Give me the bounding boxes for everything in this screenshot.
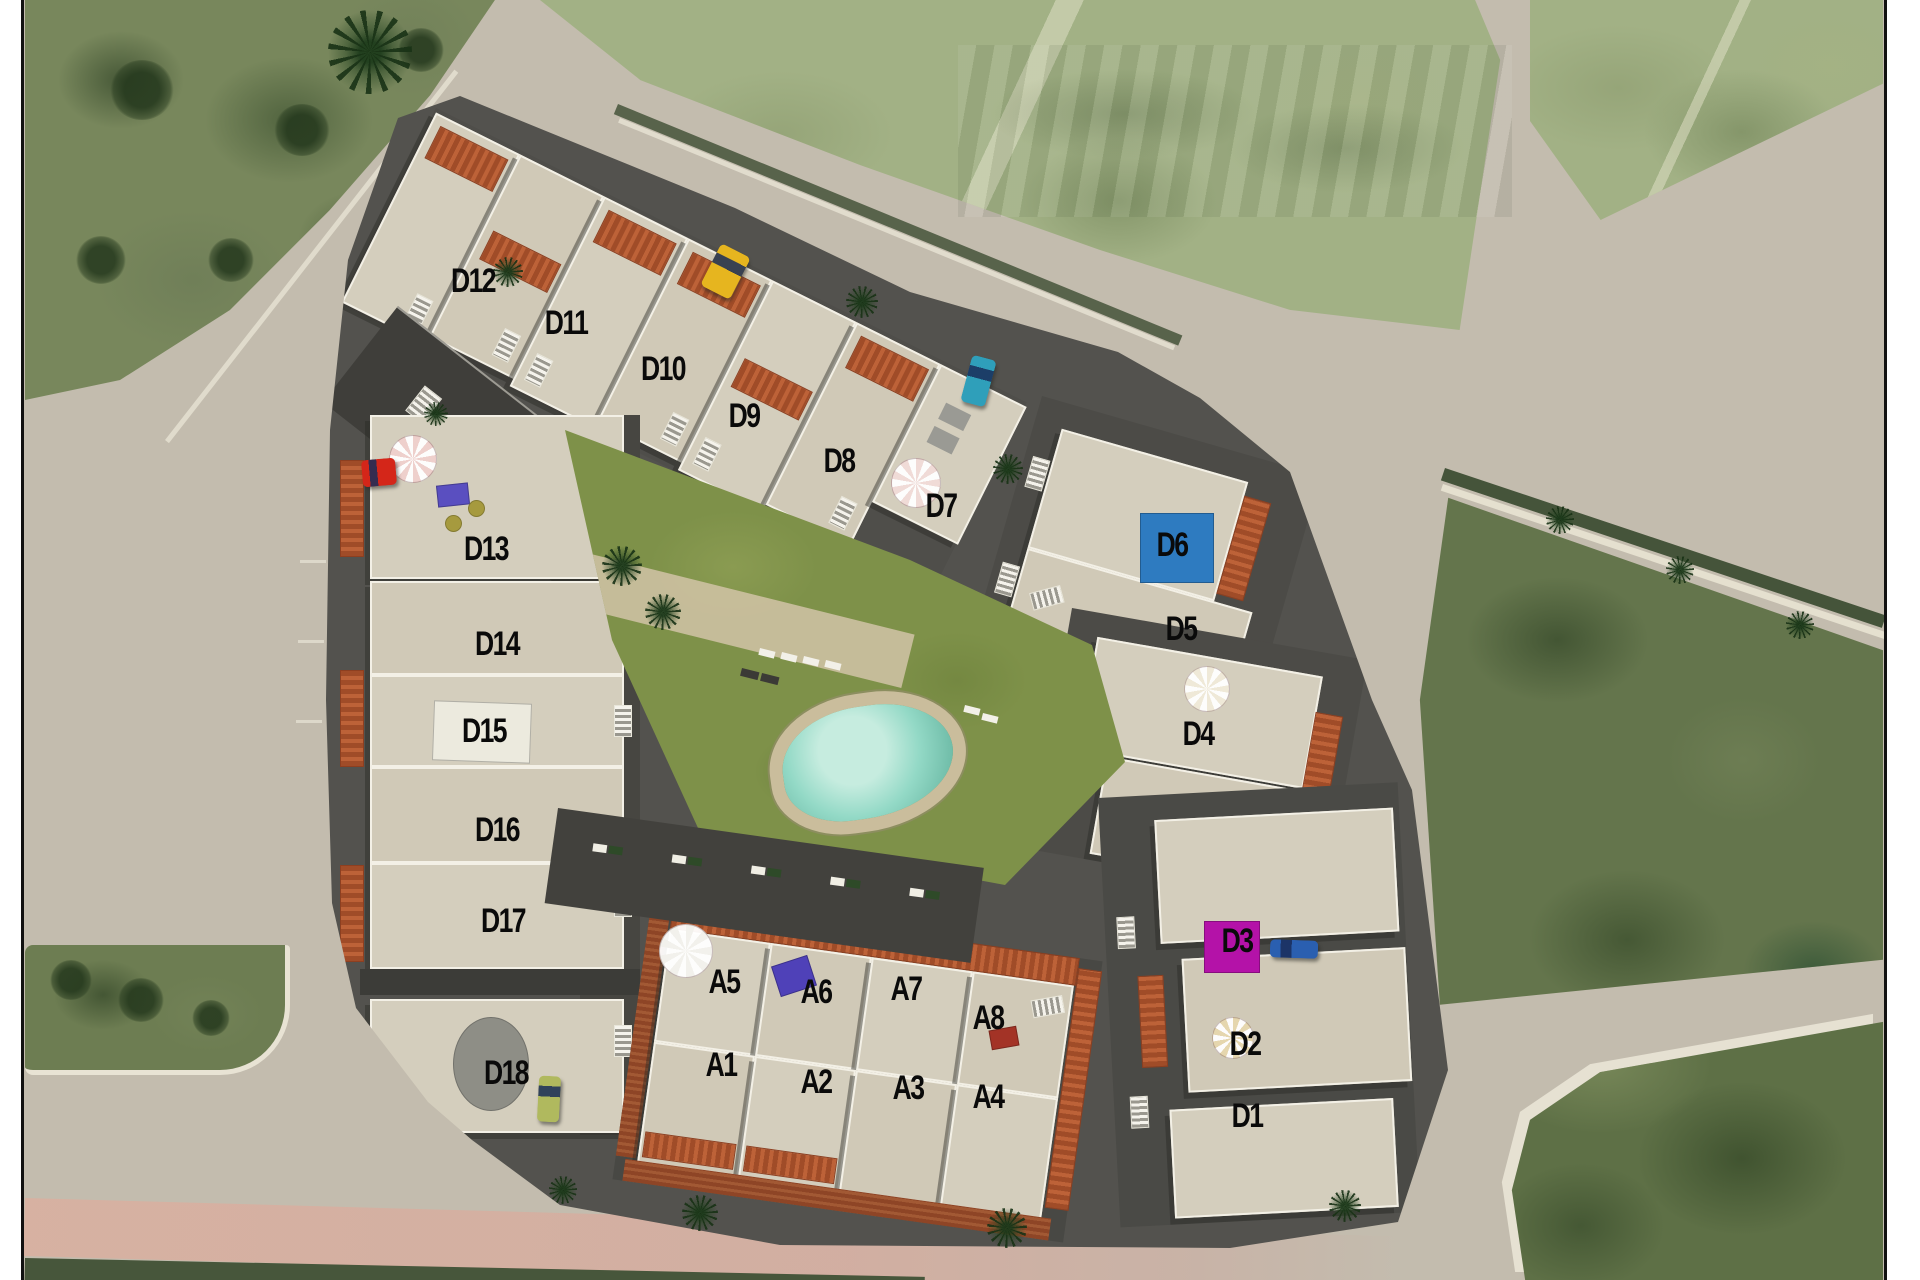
site-plan-canvas: D1D2D3D4D5D6D7D8D9D10D11D12D13D14D15D16D… [0, 0, 1920, 1280]
unit-label-a5: A5 [709, 965, 740, 999]
unit-label-d16: D16 [475, 813, 519, 847]
unit-label-d7: D7 [926, 489, 957, 523]
unit-label-d2: D2 [1230, 1027, 1261, 1061]
unit-label-a4: A4 [973, 1080, 1004, 1114]
unit-label-layer: D1D2D3D4D5D6D7D8D9D10D11D12D13D14D15D16D… [0, 0, 1920, 1280]
unit-label-a1: A1 [706, 1048, 737, 1082]
unit-label-d11: D11 [545, 306, 588, 340]
aerial-photo: D1D2D3D4D5D6D7D8D9D10D11D12D13D14D15D16D… [0, 0, 1920, 1280]
unit-label-a3: A3 [893, 1071, 924, 1105]
unit-label-d15: D15 [462, 714, 506, 748]
page-margin-left [0, 0, 21, 1280]
unit-label-d8: D8 [824, 444, 855, 478]
unit-label-a2: A2 [801, 1065, 832, 1099]
unit-label-d6: D6 [1157, 528, 1188, 562]
frame-line-left [21, 0, 24, 1280]
unit-label-a8: A8 [973, 1001, 1004, 1035]
unit-label-d14: D14 [475, 627, 519, 661]
unit-label-d18: D18 [484, 1056, 528, 1090]
unit-label-d3: D3 [1222, 924, 1253, 958]
unit-label-a6: A6 [801, 975, 832, 1009]
unit-label-d17: D17 [481, 904, 525, 938]
unit-label-d9: D9 [729, 399, 760, 433]
unit-label-d4: D4 [1183, 717, 1214, 751]
page-margin-right [1887, 0, 1920, 1280]
unit-label-d12: D12 [451, 264, 495, 298]
unit-label-d5: D5 [1166, 612, 1197, 646]
unit-label-a7: A7 [891, 972, 922, 1006]
unit-label-d13: D13 [464, 532, 508, 566]
unit-label-d10: D10 [641, 352, 685, 386]
unit-label-d1: D1 [1232, 1099, 1263, 1133]
